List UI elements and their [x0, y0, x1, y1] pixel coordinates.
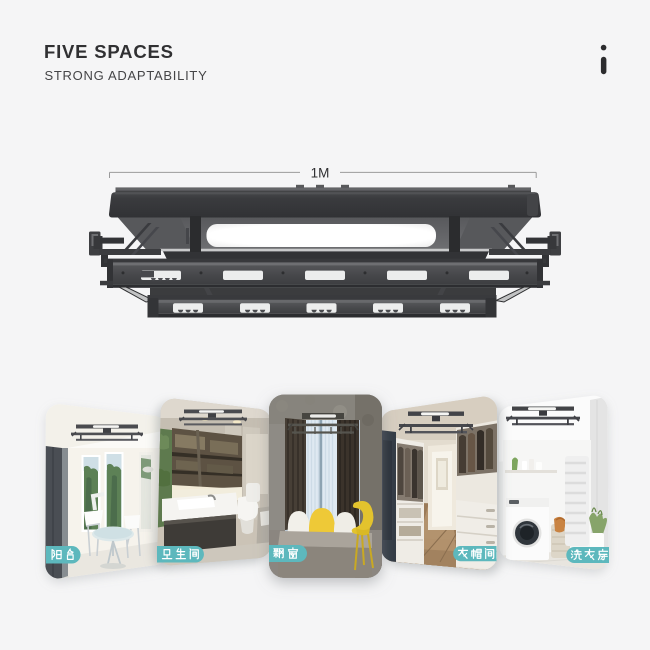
svg-text:1M: 1M — [311, 166, 330, 181]
svg-text:STRONG ADAPTABILITY: STRONG ADAPTABILITY — [45, 68, 208, 83]
svg-text:FIVE SPACES: FIVE SPACES — [44, 41, 174, 62]
